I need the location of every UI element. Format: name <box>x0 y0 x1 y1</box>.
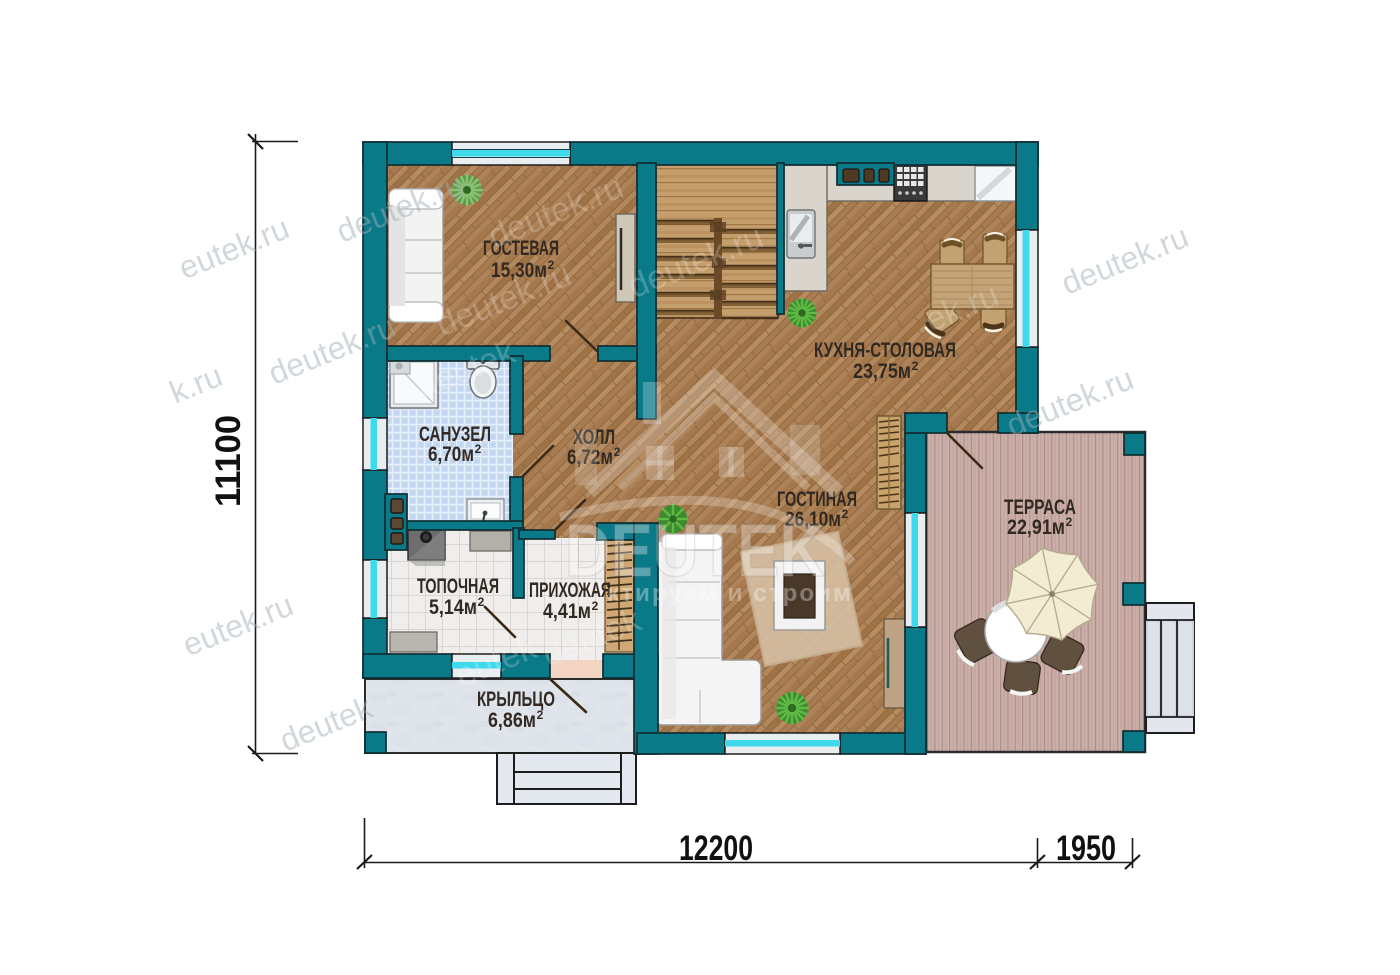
svg-text:2: 2 <box>475 442 482 456</box>
svg-text:1950: 1950 <box>1056 829 1116 868</box>
svg-text:6,86м: 6,86м <box>488 709 536 732</box>
svg-text:2: 2 <box>592 599 599 613</box>
svg-text:k.ru: k.ru <box>164 357 227 410</box>
svg-text:6,70м: 6,70м <box>428 443 474 466</box>
svg-text:2: 2 <box>842 507 849 521</box>
svg-text:eutek.ru: eutek.ru <box>178 586 299 663</box>
svg-text:КУХНЯ-СТОЛОВАЯ: КУХНЯ-СТОЛОВАЯ <box>814 339 956 362</box>
svg-text:ТОПОЧНАЯ: ТОПОЧНАЯ <box>417 575 499 598</box>
svg-text:2: 2 <box>537 708 544 722</box>
svg-text:11100: 11100 <box>209 415 248 507</box>
svg-text:2: 2 <box>912 359 919 373</box>
svg-text:22,91м: 22,91м <box>1007 516 1065 539</box>
svg-text:eutek.ru: eutek.ru <box>174 209 295 286</box>
svg-text:ктируем и строим: ктируем и строим <box>607 580 853 607</box>
svg-text:deutek.ru: deutek.ru <box>1056 218 1193 301</box>
svg-text:2: 2 <box>1066 515 1073 529</box>
svg-text:2: 2 <box>478 595 485 609</box>
svg-text:12200: 12200 <box>679 829 753 868</box>
svg-text:23,75м: 23,75м <box>853 360 911 383</box>
svg-text:5,14м: 5,14м <box>429 596 477 619</box>
svg-text:deutek: deutek <box>275 689 378 759</box>
